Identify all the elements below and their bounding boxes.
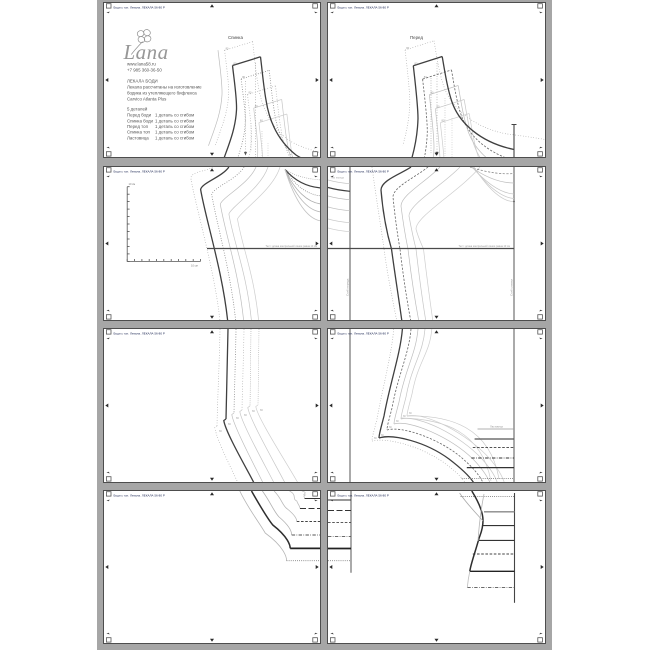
svg-text:Боди с топ. Лекала. ЛЕКАЛА 56-: Боди с топ. Лекала. ЛЕКАЛА 56-80 Р xyxy=(114,169,165,173)
svg-text:80: 80 xyxy=(409,412,412,415)
svg-text:Ластовица: Ластовица xyxy=(127,136,149,141)
svg-text:80: 80 xyxy=(260,119,263,123)
svg-text:80: 80 xyxy=(260,408,263,412)
svg-text:+7 985 360-36-50: +7 985 360-36-50 xyxy=(127,68,162,73)
svg-text:Боди с топ. Лекала. ЛЕКАЛА 56-: Боди с топ. Лекала. ЛЕКАЛА 56-80 Р xyxy=(114,331,165,335)
svg-text:Лекала рассчитаны на изготовле: Лекала рассчитаны на изготовление xyxy=(127,85,202,90)
svg-text:80: 80 xyxy=(228,422,231,426)
svg-text:5 деталей: 5 деталей xyxy=(127,107,148,112)
svg-text:1 деталь со сгибом: 1 деталь со сгибом xyxy=(155,136,194,141)
svg-text:80: 80 xyxy=(396,420,399,423)
svg-text:Сгиб переда: Сгиб переда xyxy=(346,278,350,296)
svg-text:Спинка боди: Спинка боди xyxy=(127,119,154,124)
svg-text:80: 80 xyxy=(406,46,409,50)
svg-text:Тест: длина контрольной линии: Тест: длина контрольной линии равна 10 с… xyxy=(266,245,318,248)
svg-text:Сгиб спинки: Сгиб спинки xyxy=(510,279,514,296)
svg-text:80: 80 xyxy=(255,104,258,108)
svg-text:Боди с топ. Лекала. ЛЕКАЛА 56-: Боди с топ. Лекала. ЛЕКАЛА 56-80 Р xyxy=(114,5,165,9)
svg-text:80: 80 xyxy=(236,416,239,420)
svg-text:Lana: Lana xyxy=(123,40,169,64)
svg-text:80: 80 xyxy=(403,415,406,418)
svg-text:Боди с топ. Лекала. ЛЕКАЛА 56-: Боди с топ. Лекала. ЛЕКАЛА 56-80 Р xyxy=(338,169,389,173)
svg-text:1 деталь со сгибом: 1 деталь со сгибом xyxy=(155,113,194,118)
svg-text:1 деталь со сгибом: 1 деталь со сгибом xyxy=(155,119,194,124)
svg-text:Боди с топ. Лекала. ЛЕКАЛА 56-: Боди с топ. Лекала. ЛЕКАЛА 56-80 Р xyxy=(114,493,165,497)
svg-text:ЛЕКАЛА БОДИ: ЛЕКАЛА БОДИ xyxy=(127,79,158,84)
svg-text:80: 80 xyxy=(219,429,222,433)
svg-text:10 см: 10 см xyxy=(191,264,198,268)
svg-text:1 деталь со сгибом: 1 деталь со сгибом xyxy=(155,124,194,129)
svg-text:80: 80 xyxy=(249,91,252,95)
svg-text:10 см: 10 см xyxy=(129,182,136,186)
svg-text:Низ переда: Низ переда xyxy=(331,177,344,180)
svg-text:Перед топ: Перед топ xyxy=(127,124,149,129)
svg-text:Тест: длина контрольной линии: Тест: длина контрольной линии равна 10 с… xyxy=(459,245,511,248)
svg-text:Спинка: Спинка xyxy=(228,35,243,40)
svg-text:Перед боди: Перед боди xyxy=(127,113,152,118)
svg-text:80: 80 xyxy=(226,46,229,50)
svg-text:Боди с топ. Лекала. ЛЕКАЛА 56-: Боди с топ. Лекала. ЛЕКАЛА 56-80 Р xyxy=(338,331,389,335)
svg-text:80: 80 xyxy=(437,105,440,109)
svg-text:80: 80 xyxy=(374,437,377,440)
svg-text:www.lana58.ru: www.lana58.ru xyxy=(127,62,156,67)
svg-text:бодика из утепляющего бифлекса: бодика из утепляющего бифлекса xyxy=(127,91,197,96)
svg-text:80: 80 xyxy=(242,75,245,79)
svg-text:Carvico Atlanta Plus: Carvico Atlanta Plus xyxy=(127,97,167,102)
svg-text:Ластовица: Ластовица xyxy=(490,425,503,429)
svg-text:Спинка топ: Спинка топ xyxy=(127,130,151,135)
svg-text:1 деталь со сгибом: 1 деталь со сгибом xyxy=(155,130,194,135)
svg-text:80: 80 xyxy=(244,413,247,417)
svg-text:80: 80 xyxy=(389,426,392,429)
svg-text:Боди с топ. Лекала. ЛЕКАЛА 56-: Боди с топ. Лекала. ЛЕКАЛА 56-80 Р xyxy=(338,493,389,497)
svg-text:80: 80 xyxy=(252,409,255,413)
svg-text:Перед: Перед xyxy=(410,35,423,40)
svg-text:80: 80 xyxy=(431,91,434,95)
svg-text:80: 80 xyxy=(424,75,427,79)
svg-text:Боди с топ. Лекала. ЛЕКАЛА 56-: Боди с топ. Лекала. ЛЕКАЛА 56-80 Р xyxy=(338,5,389,9)
svg-text:80: 80 xyxy=(442,119,445,123)
